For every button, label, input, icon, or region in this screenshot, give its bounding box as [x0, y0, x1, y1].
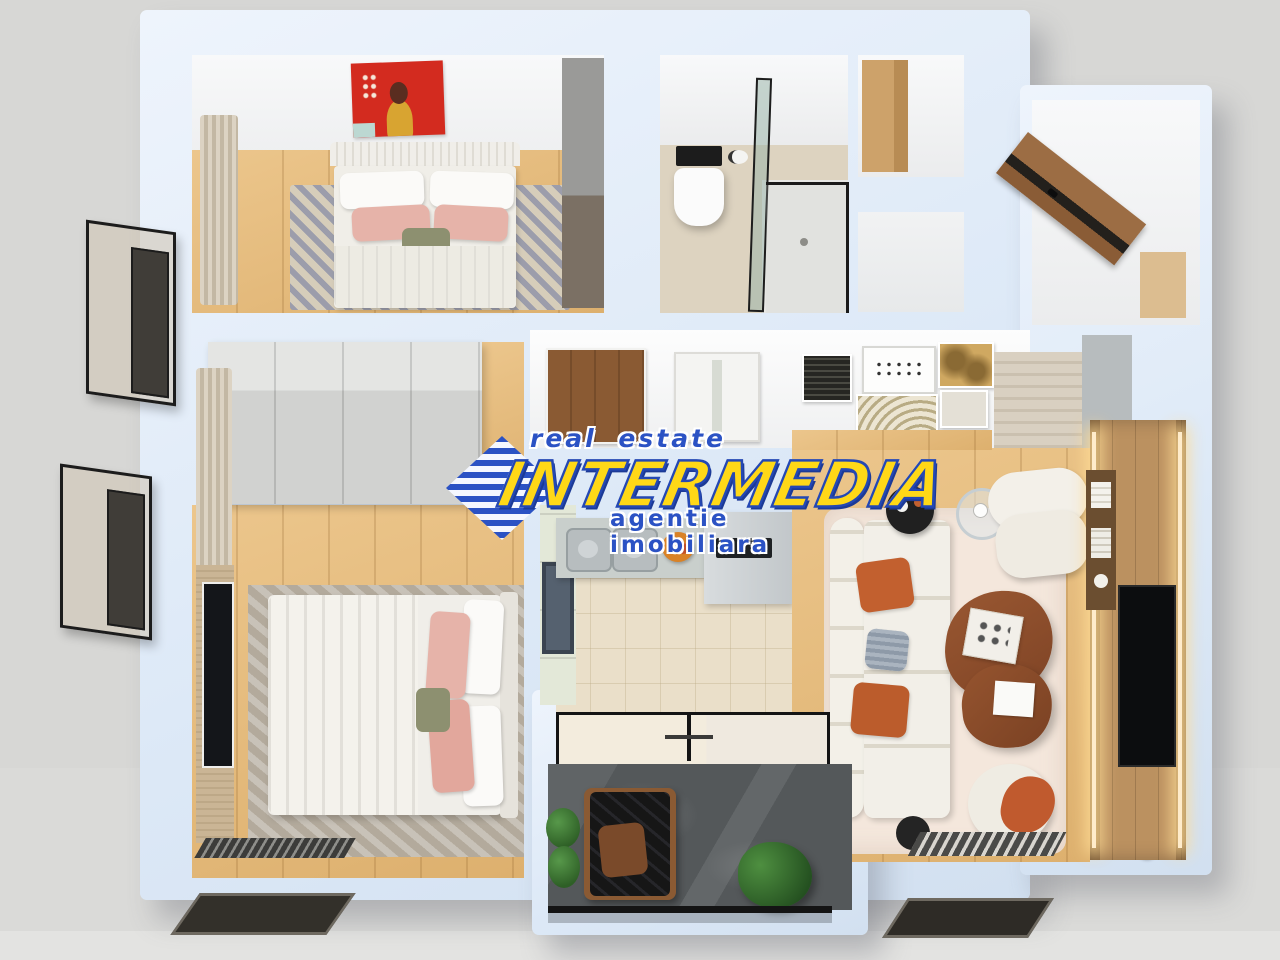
storage-room-b	[858, 212, 964, 312]
living-television	[1118, 585, 1176, 767]
entrance-door-handle	[1047, 188, 1059, 199]
intermedia-watermark: real estate INTERMEDIA agentie imobiliar…	[438, 414, 868, 546]
french-balcony-upper	[86, 220, 176, 407]
travertine-wall	[994, 352, 1082, 448]
striped-mat	[908, 832, 1067, 856]
artwork-dots	[361, 73, 378, 100]
shower-drain	[800, 238, 808, 246]
shower-glass-corner	[766, 182, 849, 313]
gallery-frame-gold	[938, 342, 994, 388]
toilet-flush-panel	[676, 146, 722, 166]
gallery-frame-sketch	[862, 346, 936, 394]
toilet-paper-holder	[728, 150, 748, 164]
led-strip-right	[1178, 432, 1182, 848]
gallery-frame-dark	[802, 354, 852, 402]
lounge-chair-cushion	[597, 822, 648, 879]
balcony-potted-plant	[738, 842, 812, 908]
storage-wood-closet	[862, 60, 908, 172]
artwork-head	[389, 82, 408, 105]
bedroom2-striped-bench	[194, 838, 356, 858]
serving-tray	[962, 608, 1024, 665]
bedroom1-headboard	[330, 142, 520, 166]
tray-items	[973, 618, 1011, 650]
sofa-orange-cushion-2	[850, 682, 910, 739]
gallery-frame-small	[940, 390, 988, 428]
books-stack-2	[1091, 528, 1111, 558]
bedroom2-duvet	[268, 595, 418, 815]
bedroom2-pillow-pink-1	[425, 611, 471, 700]
french-balcony-window	[107, 489, 145, 630]
french-balcony-window	[131, 247, 169, 398]
sofa-gray-cushion	[864, 628, 910, 672]
balcony-glass-doors	[556, 712, 830, 770]
watermark-bottom-line: agentie imobiliara	[610, 506, 868, 558]
red-portrait-artwork	[351, 60, 446, 137]
bedroom2-television	[202, 582, 234, 768]
books-stack-1	[1091, 482, 1111, 508]
wall-hung-toilet	[674, 168, 724, 226]
bedroom1-wardrobe	[562, 58, 604, 308]
sofa-orange-cushion-1	[855, 556, 915, 613]
sketch-marks	[874, 360, 922, 378]
railing-shadow	[548, 913, 832, 923]
shelf-decor	[1094, 574, 1108, 588]
facade-window-left	[170, 893, 355, 935]
balcony-railing	[548, 906, 832, 913]
bedroom1-duvet	[334, 246, 516, 308]
bedroom1-pillow-white-1	[339, 171, 424, 210]
french-balcony-lower	[60, 464, 152, 641]
entry-wood-panel	[1140, 252, 1186, 318]
magazine	[993, 681, 1035, 718]
facade-window-right	[882, 898, 1054, 938]
door-handle-bar	[665, 735, 713, 739]
cup	[973, 503, 988, 518]
balcony-shrub-1	[546, 808, 580, 848]
armchair-seat	[993, 507, 1091, 580]
artwork-corner	[353, 123, 375, 138]
balcony-shrub-2	[548, 846, 580, 888]
bedroom2-pillow-olive	[416, 688, 450, 732]
floor-plan-render: real estate INTERMEDIA agentie imobiliar…	[0, 0, 1280, 960]
media-shelf	[1086, 470, 1116, 610]
artwork-figure	[386, 100, 413, 138]
bedroom1-curtain	[200, 115, 238, 305]
